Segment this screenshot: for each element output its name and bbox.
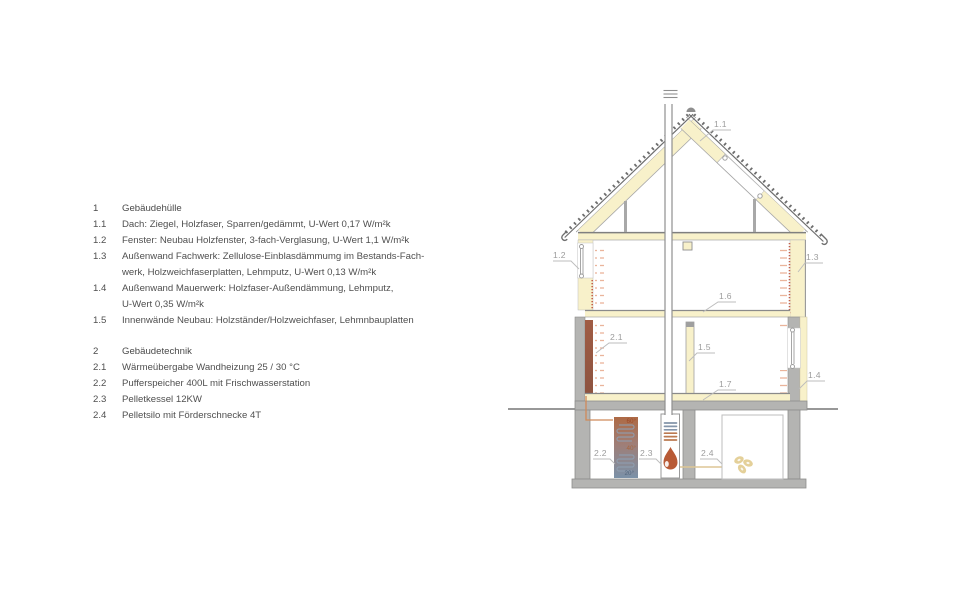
roof-insulation-left bbox=[578, 120, 701, 239]
ground-left-wall bbox=[575, 317, 604, 401]
basement-wall-middle bbox=[683, 410, 695, 479]
callout-1-6: 1.6 bbox=[719, 291, 732, 301]
exterior-insulation bbox=[800, 317, 807, 408]
plaster-ticks bbox=[777, 319, 787, 327]
basement-slab bbox=[572, 479, 806, 488]
callout-1-1: 1.1 bbox=[714, 119, 727, 129]
roof-window-hinge-bottom bbox=[758, 194, 762, 198]
callout-1-5: 1.5 bbox=[698, 342, 711, 352]
attic-floor bbox=[578, 232, 806, 240]
basement-wall-right bbox=[788, 410, 800, 479]
plaster-ticks bbox=[595, 321, 604, 395]
ground-floor-slab bbox=[575, 393, 807, 410]
gutter-right bbox=[822, 235, 827, 244]
collar-post-left bbox=[624, 201, 627, 232]
buffer-temp-middle: 40° bbox=[626, 444, 636, 452]
pellet-silo bbox=[722, 415, 783, 479]
callout-1-4: 1.4 bbox=[808, 370, 821, 380]
plaster-ticks bbox=[595, 244, 604, 306]
callout-2-1: 2.1 bbox=[610, 332, 623, 342]
callout-1-3: 1.3 bbox=[806, 252, 819, 262]
plaster-ticks bbox=[777, 244, 787, 312]
buffer-temp-top: 60° bbox=[626, 417, 636, 425]
pellet-boiler bbox=[661, 414, 680, 478]
vent-symbol bbox=[664, 91, 678, 98]
collar-post-right bbox=[753, 199, 756, 232]
upper-left-wall bbox=[578, 240, 605, 310]
attic-hatch bbox=[683, 242, 692, 250]
callout-1-2: 1.2 bbox=[553, 250, 566, 260]
callout-2-2: 2.2 bbox=[594, 448, 607, 458]
roof-left-slope bbox=[564, 114, 701, 238]
page: 1Gebäudehülle1.1Dach: Ziegel, Holzfaser,… bbox=[0, 0, 960, 600]
wall-heating-strip bbox=[585, 320, 593, 398]
buffer-temp-bottom: 20° bbox=[624, 469, 634, 477]
roof-window bbox=[717, 154, 764, 200]
callout-2-3: 2.3 bbox=[640, 448, 653, 458]
plaster-ticks bbox=[777, 370, 787, 396]
section-drawing: 60° 40° 20° bbox=[0, 0, 960, 600]
ridge-cap bbox=[687, 108, 696, 113]
roof-right-slope bbox=[681, 114, 824, 241]
callout-2-4: 2.4 bbox=[701, 448, 714, 458]
upper-right-wall-fachwerk bbox=[777, 240, 806, 317]
buffer-tank: 60° 40° 20° bbox=[614, 417, 638, 478]
intermediate-floor bbox=[585, 310, 790, 317]
callout-1-7: 1.7 bbox=[719, 379, 732, 389]
roof-tiles-right bbox=[694, 115, 824, 238]
roof-window-hinge-top bbox=[723, 156, 727, 160]
